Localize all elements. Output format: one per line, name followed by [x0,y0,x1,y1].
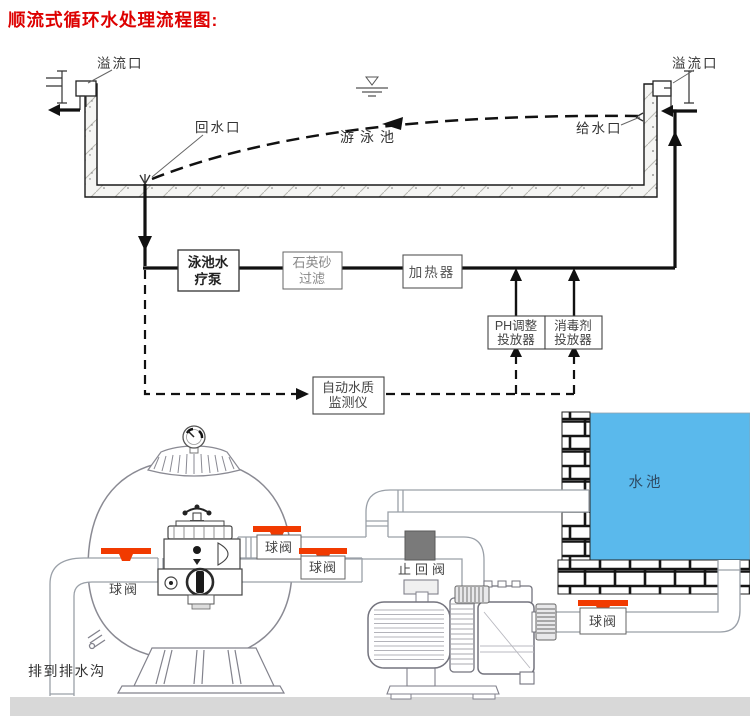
up-arrow-icon [668,131,682,146]
ball-valve-filter-out-label: 球阀 [265,540,293,555]
monitor-line2: 监测仪 [328,395,367,410]
injection-arrows [516,278,574,316]
overflow-box-left [76,81,96,96]
ph-injection-arrow-icon [510,268,522,281]
overflow-right-label: 溢流口 [672,56,719,71]
disinfectant-line2: 投放器 [554,332,592,347]
pump-motor [368,602,450,668]
chlorine-injection-arrow-icon [568,268,580,281]
tank-base [118,648,284,693]
page-title: 顺流式循环水处理流程图: [8,10,218,30]
pump-box-line2: 疗泵 [195,271,222,287]
monitor-box: 自动水质 监测仪 [313,377,384,414]
return-nozzle-icon [140,174,150,184]
ph-doser-line1: PH调整 [495,318,538,333]
pump-box-line1: 泳池水 [188,254,229,270]
ph-doser-box: PH调整 投放器 [488,316,545,349]
ball-valve-pump-in: 球阀 [299,548,347,579]
ball-valve-filter-out: 球阀 [253,526,301,559]
water-level-icon [356,77,388,96]
supply-port-label: 给水口 [576,121,623,136]
heater-box: 加热器 [403,255,462,288]
heater-label: 加热器 [409,265,456,280]
overflow-left-label: 溢流口 [97,56,144,71]
monitor-in-arrow-icon [296,388,309,400]
ball-valve-left-label: 球阀 [109,582,139,597]
equipment-illustration: 水池 [10,412,750,716]
ball-valve-tank: 球阀 [578,600,628,634]
pool-label: 游泳池 [340,129,400,145]
disinfectant-doser-box: 消毒剂 投放器 [545,316,602,349]
flow-chart: 泳池水 疗泵 石英砂 过滤 加热器 PH调整 投放器 消毒剂 投放器 自动水质 … [138,105,697,414]
monitor-line1: 自动水质 [322,380,374,395]
tank-drain-plug-icon [88,630,105,649]
sand-filter-line2: 过滤 [299,271,325,286]
pump-illustration [368,580,538,699]
check-valve [405,531,435,560]
ball-valve-handle-icon [299,548,347,554]
down-arrow-icon [138,236,152,251]
ground [10,697,750,716]
sand-filter-box: 石英砂 过滤 [283,252,342,289]
diagram-canvas: 顺流式循环水处理流程图: 溢流口 溢流口 [0,0,750,716]
brick-wall [562,412,590,562]
pump-box: 泳池水 疗泵 [178,250,239,291]
into-pool-arrow-icon [661,105,673,117]
water-treatment-diagram-page: 顺流式循环水处理流程图: 溢流口 溢流口 [0,0,750,716]
ball-valve-pump-in-label: 球阀 [309,560,337,575]
ph-doser-line2: 投放器 [497,332,535,347]
pool-schematic: 溢流口 溢流口 回水口 给水口 游泳池 [46,56,719,197]
ball-valve-handle-icon [578,600,628,606]
drain-note-label: 排到排水沟 [28,663,106,679]
ball-valve-handle-icon [101,548,151,554]
ball-valve-tank-label: 球阀 [589,614,617,629]
sand-filter-line1: 石英砂 [292,255,331,270]
water-tank-water [590,413,750,560]
water-tank-label: 水池 [629,474,664,491]
disinfectant-line1: 消毒剂 [554,318,592,333]
check-valve-label: 止回阀 [398,562,449,577]
ball-valve-handle-icon [253,526,301,532]
return-port-label: 回水口 [195,120,242,135]
